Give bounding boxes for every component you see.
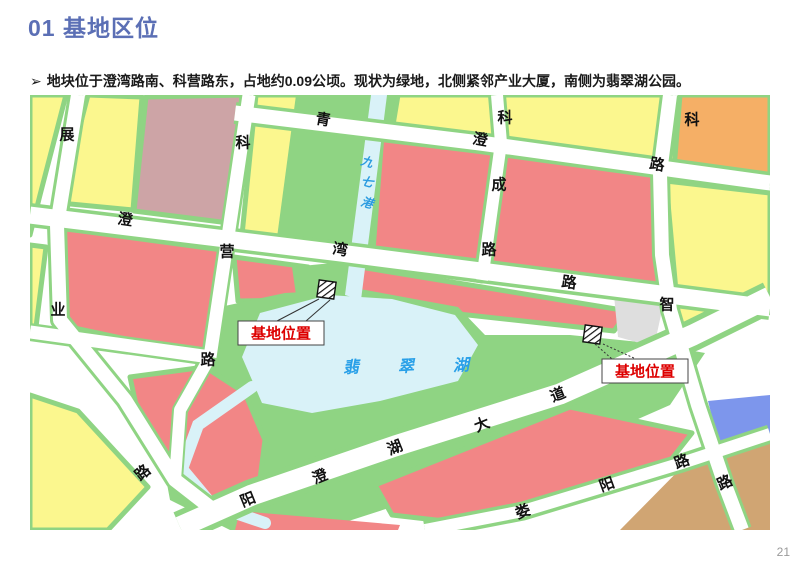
map-label-翠: 翠	[398, 357, 417, 376]
map-label-青: 青	[314, 109, 332, 129]
map-label-成: 成	[491, 176, 506, 194]
map-label-路: 路	[481, 241, 497, 259]
intro-bullet: ➢地块位于澄湾路南、科营路东，占地约0.09公顷。现状为绿地，北侧紧邻产业大厦，…	[30, 71, 794, 91]
site-marker-1	[317, 280, 336, 299]
map-label-湖: 湖	[453, 356, 473, 375]
map-canvas: 展业科营路青澄路澄湾路科成路科智路阳澄湖大道娄阳路路九七港翡翠湖 基地位置基地位…	[30, 95, 770, 530]
map-label-路: 路	[200, 351, 216, 369]
bullet-arrow-icon: ➢	[30, 73, 42, 89]
map-label-湾: 湾	[331, 240, 348, 260]
site-callout-1-label: 基地位置	[250, 325, 311, 343]
intro-bullet-text: 地块位于澄湾路南、科营路东，占地约0.09公顷。现状为绿地，北侧紧邻产业大厦，南…	[47, 73, 690, 89]
map-label-翡: 翡	[343, 358, 363, 377]
map-label-展: 展	[59, 127, 74, 144]
map-label-科: 科	[684, 111, 699, 129]
map-label-营: 营	[219, 244, 234, 261]
page-number: 21	[777, 545, 790, 559]
page-title: 01 基地区位	[28, 9, 159, 43]
site-location-map: 展业科营路青澄路澄湾路科成路科智路阳澄湖大道娄阳路路九七港翡翠湖 基地位置基地位…	[30, 95, 770, 530]
site-marker-2	[583, 325, 602, 344]
map-label-智: 智	[659, 296, 674, 314]
map-label-科: 科	[497, 109, 512, 127]
map-label-业: 业	[50, 302, 65, 319]
block-yellow-left-sliver2	[30, 245, 46, 327]
site-callout-2-label: 基地位置	[614, 363, 675, 381]
map-label-科: 科	[235, 134, 250, 152]
